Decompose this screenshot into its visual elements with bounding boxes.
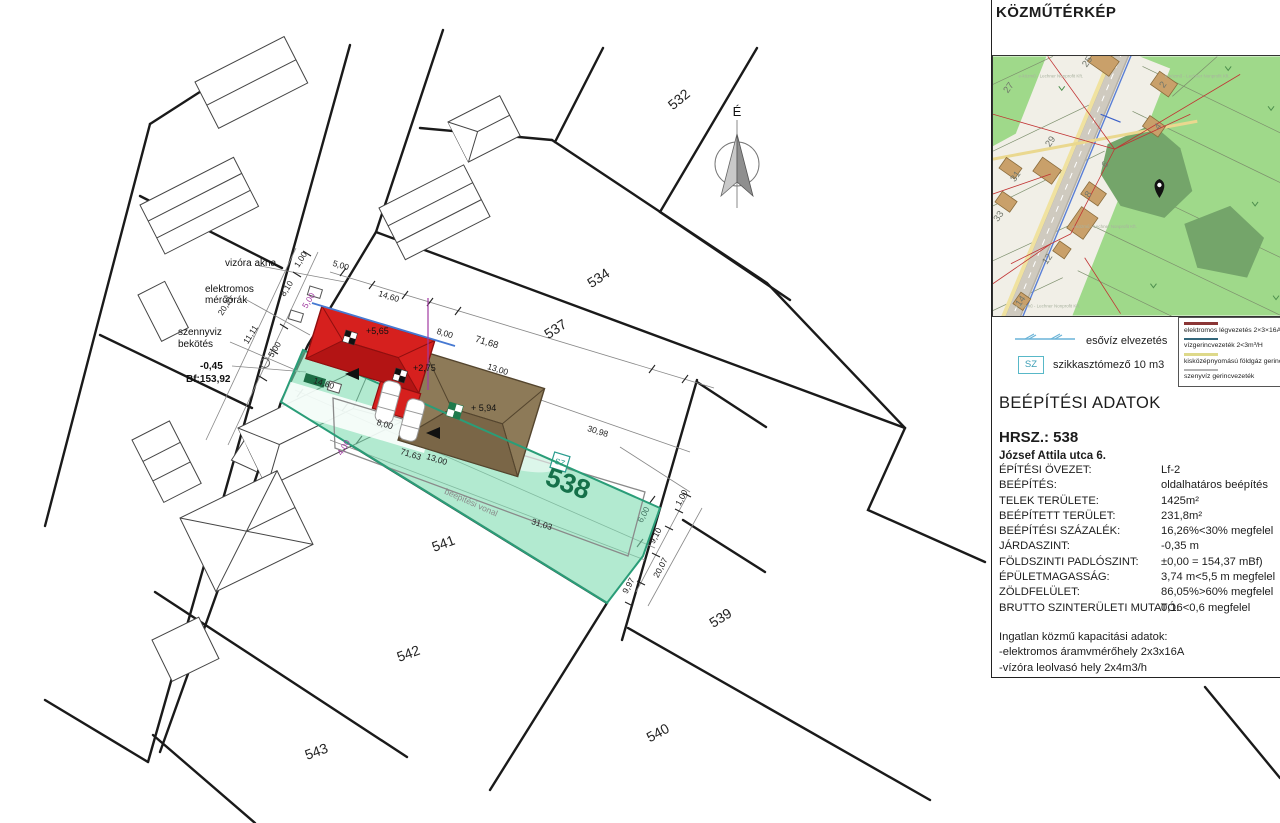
building-data-value: 3,74 m<5,5 m megfelel [1161, 570, 1275, 585]
building-data-value: -0,35 m [1161, 539, 1199, 554]
info-panel: KÖZMŰTÉRKÉP [991, 0, 1280, 678]
map-watermark: e-közmű - Lechner Nonprofit Kft. [1019, 73, 1084, 78]
building-data-row: ZÖLDFELÜLET:86,05%>60% megfelel [999, 585, 1280, 600]
house-roof [140, 157, 259, 254]
utility-legend-box: elektromos légvezetés 2×3×16Avízgerincve… [1178, 317, 1280, 387]
dimension-label: 11,11 [241, 323, 260, 345]
building-data-rows: ÉPÍTÉSI ÖVEZET:Lf-2BEÉPÍTÉS:oldalhatáros… [999, 463, 1280, 616]
building-data-value: 86,05%>60% megfelel [1161, 585, 1273, 600]
house-roof [379, 165, 490, 260]
legend-line-swatch [1184, 353, 1218, 356]
building-data-row: JÁRDASZINT:-0,35 m [999, 539, 1280, 554]
utility-capacity-heading: Ingatlan közmű kapacitási adatok: [999, 630, 1280, 645]
building-data-label: BEÉPÍTÉSI SZÁZALÉK: [999, 524, 1161, 539]
dimension-label: 5,00 [332, 258, 351, 272]
street-annotation-label: -0,45 [200, 361, 223, 372]
blueprint-page: SZ [0, 0, 1280, 823]
legend-item-label: szenyvíz gerincvezeték [1184, 373, 1280, 380]
building-data-label: ÉPÍTÉSI ÖVEZET: [999, 463, 1161, 478]
page-title: KÖZMŰTÉRKÉP [996, 4, 1116, 21]
building-data-row: FÖLDSZINTI PADLÓSZINT:±0,00 = 154,37 mBf… [999, 555, 1280, 570]
building-data-value: Lf-2 [1161, 463, 1180, 478]
legend-item-label: elektromos légvezetés 2×3×16A [1184, 327, 1280, 334]
building-data-row: ÉPÜLETMAGASSÁG:3,74 m<5,5 m megfelel [999, 570, 1280, 585]
building-data-row: ÉPÍTÉSI ÖVEZET:Lf-2 [999, 463, 1280, 478]
street-annotation-label: bekötés [178, 339, 213, 350]
map-watermark: e-közmű - Lechner Nonprofit Kft. [1165, 73, 1230, 78]
building-data-label: BRUTTO SZINTERÜLETI MUTATÓ: [999, 601, 1161, 616]
rainwater-legend-icon [1013, 331, 1079, 343]
dimension-label: 71,68 [474, 334, 500, 351]
legend-item-label: vízgerincvezeték 2<3m³/H [1184, 342, 1280, 349]
street-annotation-label: elektromos [205, 284, 254, 295]
parcel-number: HRSZ.: 538 [999, 429, 1280, 446]
building-data-value: 0,16<0,6 megfelel [1161, 601, 1250, 616]
building-data-value: ±0,00 = 154,37 mBf) [1161, 555, 1263, 570]
dimension-label: 8,00 [436, 326, 455, 340]
building-data-heading: BEÉPÍTÉSI ADATOK [999, 394, 1280, 413]
plot-number-label: 540 [644, 720, 672, 745]
building-data-label: ÉPÜLETMAGASSÁG: [999, 570, 1161, 585]
map-watermark: e-közmű - Lechner Nonprofit Kft. [1016, 304, 1081, 309]
legend-line-swatch [1184, 322, 1218, 325]
dimension-label: 14,60 [377, 288, 401, 304]
house-roof [132, 421, 201, 502]
building-data-row: TELEK TERÜLETE:1425m² [999, 494, 1280, 509]
dimension-label: 1,00 [292, 250, 309, 270]
utility-capacity-lines: -elektromos áramvmérőhely 2x3x16A-vízóra… [999, 645, 1280, 676]
building-data-row: BEÉPÍTÉS:oldalhatáros beépítés [999, 478, 1280, 493]
building-data-row: BRUTTO SZINTERÜLETI MUTATÓ:0,16<0,6 megf… [999, 601, 1280, 616]
legend-line-swatch [1184, 369, 1218, 372]
plot-number-label: 534 [584, 265, 612, 291]
height-marker-label: +2,75 [413, 363, 436, 373]
plot-number-label: 542 [395, 642, 423, 665]
utility-box-marker [288, 310, 303, 322]
utility-capacity-line: -vízóra leolvasó hely 2x4m3/h [999, 661, 1280, 676]
house-roof [180, 471, 313, 592]
building-data-value: 16,26%<30% megfelel [1161, 524, 1273, 539]
building-data-value: oldalhatáros beépítés [1161, 478, 1268, 493]
building-data-value: 231,8m² [1161, 509, 1202, 524]
rainwater-legend-label: esővíz elvezetés [1086, 335, 1167, 347]
location-minimap[interactable]: 252724296318331214 e-közmű - Lechner Non… [992, 55, 1280, 317]
sz-legend-label: szikkasztómező 10 m3 [1053, 359, 1164, 371]
building-data-row: BEÉPÍTÉSI SZÁZALÉK:16,26%<30% megfelel [999, 524, 1280, 539]
north-arrow: É [715, 104, 759, 208]
building-data-label: ZÖLDFELÜLET: [999, 585, 1161, 600]
street-annotation-label: mérőórák [205, 295, 248, 306]
plot-number-label: 532 [665, 85, 693, 112]
height-marker-label: +5,65 [366, 326, 389, 336]
building-data-section: BEÉPÍTÉSI ADATOK HRSZ.: 538 József Attil… [999, 394, 1280, 676]
house-roof [195, 37, 308, 129]
height-marker-label: + 5,94 [471, 403, 496, 413]
house-roof [448, 96, 520, 162]
utility-capacity-section: Ingatlan közmű kapacitási adatok: -elekt… [999, 630, 1280, 676]
sz-legend-icon: SZ [1018, 356, 1044, 374]
street-annotation-label: szennyviz [178, 327, 222, 338]
address: József Attila utca 6. [999, 450, 1280, 462]
dimension-label: 30,98 [586, 423, 610, 439]
north-label: É [733, 104, 742, 119]
map-watermark: e-közmű - Lechner Nonprofit Kft. [1072, 224, 1137, 229]
building-data-label: TELEK TERÜLETE: [999, 494, 1161, 509]
building-data-label: BEÉPÍTETT TERÜLET: [999, 509, 1161, 524]
legend-item-label: kisközépnyomású földgáz gerincvezeték [1184, 358, 1280, 365]
plot-number-label: 537 [541, 316, 569, 342]
legend-line-swatch [1184, 338, 1218, 341]
street-annotation-label: vizóra akna [225, 258, 277, 269]
building-data-label: BEÉPÍTÉS: [999, 478, 1161, 493]
street-annotation-label: Bf:153,92 [186, 374, 231, 385]
utility-capacity-line: -elektromos áramvmérőhely 2x3x16A [999, 645, 1280, 660]
plot-number-label: 541 [430, 532, 458, 555]
building-data-label: FÖLDSZINTI PADLÓSZINT: [999, 555, 1161, 570]
building-data-value: 1425m² [1161, 494, 1199, 509]
plot-number-label: 543 [303, 740, 331, 763]
building-data-label: JÁRDASZINT: [999, 539, 1161, 554]
building-data-row: BEÉPÍTETT TERÜLET:231,8m² [999, 509, 1280, 524]
plot-number-label: 539 [706, 605, 734, 631]
